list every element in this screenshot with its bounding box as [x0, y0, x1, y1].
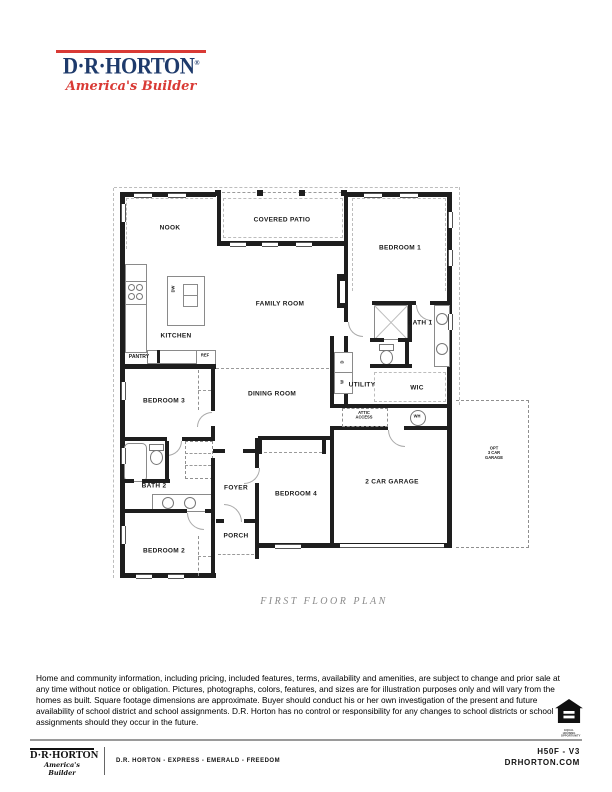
- room-label-nook: NOOK: [160, 225, 181, 232]
- plan-geometry: [344, 308, 348, 322]
- plan-geometry: [344, 192, 348, 276]
- plan-geometry: [147, 350, 197, 364]
- plan-geometry: [296, 242, 312, 247]
- footer-vertical-divider: [104, 747, 105, 775]
- plan-geometry: [217, 192, 347, 193]
- plan-geometry: [404, 426, 452, 430]
- plan-geometry: [257, 190, 263, 196]
- plan-geometry: [262, 242, 278, 247]
- logo-name-text: D·R·HORTON: [63, 53, 195, 79]
- plan-geometry: [120, 437, 167, 441]
- equal-housing-logo: EQUAL HOUSING OPPORTUNITY: [551, 699, 587, 749]
- room-label-pantry: PANTRY: [129, 354, 149, 359]
- shower: [374, 305, 408, 340]
- plan-geometry: [388, 430, 405, 447]
- equal-housing-icon: [555, 699, 583, 723]
- plan-geometry: [322, 440, 326, 454]
- plan-geometry: [136, 293, 143, 300]
- plan-geometry: [448, 212, 453, 228]
- plan-geometry: [255, 438, 259, 468]
- plan-geometry: [213, 449, 225, 453]
- plan-geometry: [436, 343, 448, 355]
- plan-geometry: [456, 400, 529, 548]
- plan-geometry: [339, 280, 346, 304]
- plan-geometry: [114, 187, 458, 188]
- plan-geometry: [244, 468, 260, 484]
- plan-geometry: [346, 192, 452, 197]
- attic-line2: ACCESS: [355, 416, 372, 421]
- room-label-dining-room: DINING ROOM: [248, 391, 296, 398]
- room-label-wic: WIC: [410, 385, 424, 392]
- room-label-porch: PORCH: [224, 533, 249, 540]
- plan-geometry: [125, 264, 147, 353]
- plan-geometry: [183, 295, 198, 307]
- plan-geometry: [255, 483, 259, 519]
- plan-geometry: [216, 368, 344, 369]
- drhorton-logo: D·R·HORTON® America's Builder: [56, 50, 206, 94]
- room-label-covered-patio: COVERED PATIO: [254, 217, 311, 224]
- fixture-label-washer: W: [341, 380, 346, 384]
- plan-geometry: [128, 284, 135, 291]
- plan-geometry: [126, 198, 213, 249]
- website: DRHORTON.COM: [505, 757, 580, 768]
- plan-geometry: [255, 519, 259, 559]
- room-label-garage: 2 CAR GARAGE: [365, 479, 418, 486]
- room-label-bedroom3: BEDROOM 3: [143, 398, 185, 405]
- plan-geometry: [244, 519, 255, 523]
- plan-geometry: [136, 574, 152, 579]
- plan-geometry: [370, 338, 384, 342]
- page: D·R·HORTON® America's Builder: [0, 0, 612, 792]
- plan-geometry: [197, 412, 212, 427]
- plan-geometry: [168, 574, 184, 579]
- plan-geometry: [113, 188, 114, 578]
- plan-geometry: [150, 450, 163, 465]
- plan-geometry: [364, 193, 382, 198]
- plan-geometry: [459, 187, 460, 405]
- footer-brands: D.R. HORTON - EXPRESS - EMERALD - FREEDO…: [116, 758, 280, 764]
- room-label-foyer: FOYER: [224, 485, 248, 492]
- plan-geometry: [243, 449, 255, 453]
- footer-logo: D·R·HORTON America's Builder: [30, 748, 94, 777]
- room-label-bath1: BATH 1: [408, 320, 433, 327]
- plan-geometry: [136, 284, 143, 291]
- room-label-opt-garage: OPT 3 CAR GARAGE: [485, 447, 503, 462]
- room-label-bedroom1: BEDROOM 1: [379, 245, 421, 252]
- plan-geometry: [198, 556, 211, 557]
- footer-divider: [30, 739, 582, 741]
- plan-geometry: [124, 443, 147, 482]
- plan-geometry: [128, 293, 135, 300]
- fixture-label-dryer: D: [341, 361, 346, 364]
- plan-code: H50F - V3: [505, 746, 580, 757]
- plan-geometry: [258, 436, 330, 440]
- plan-geometry: [165, 441, 169, 479]
- plan-geometry: [162, 497, 174, 509]
- opt-garage-line3: GARAGE: [485, 456, 503, 461]
- plan-geometry: [216, 519, 224, 523]
- room-label-family-room: FAMILY ROOM: [256, 301, 304, 308]
- plan-geometry: [230, 242, 246, 247]
- fixture-label-attic-access: ATTIC ACCESS: [355, 411, 372, 421]
- plan-geometry: [120, 509, 187, 513]
- plan-geometry: [224, 504, 242, 522]
- fixture-label-wh: WH: [414, 415, 421, 420]
- plan-geometry: [218, 554, 254, 555]
- registered-mark: ®: [194, 58, 199, 67]
- plan-geometry: [211, 458, 215, 509]
- plan-geometry: [447, 192, 452, 548]
- room-label-kitchen: KITCHEN: [161, 333, 192, 340]
- plan-geometry: [134, 193, 152, 198]
- plan-geometry: [157, 350, 160, 363]
- disclaimer-text: Home and community information, includin…: [36, 673, 566, 728]
- plan-geometry: [380, 350, 393, 365]
- plan-geometry: [121, 526, 126, 544]
- plan-geometry: [185, 465, 211, 466]
- plan-geometry: [330, 430, 334, 543]
- room-label-bedroom2: BEDROOM 2: [143, 548, 185, 555]
- plan-geometry: [168, 193, 186, 198]
- logo-tagline: America's Builder: [56, 79, 206, 94]
- plan-geometry: [167, 441, 182, 456]
- fixture-label-dw: DW: [172, 286, 177, 293]
- plan-geometry: [121, 382, 126, 400]
- plan-geometry: [400, 193, 418, 198]
- room-label-utility: UTILITY: [349, 382, 376, 389]
- plan-geometry: [405, 338, 409, 366]
- plan-geometry: [264, 452, 322, 453]
- footer-logo-name: D·R·HORTON: [30, 750, 94, 761]
- plan-geometry: [217, 192, 221, 241]
- room-label-bath2: BATH 2: [142, 483, 167, 490]
- plan-geometry: [448, 250, 453, 266]
- plan-geometry: [198, 390, 211, 391]
- logo-name: D·R·HORTON®: [56, 53, 206, 80]
- plan-geometry: [120, 479, 134, 483]
- equal-housing-text: EQUAL HOUSING OPPORTUNITY: [561, 729, 577, 738]
- plan-geometry: [275, 544, 301, 549]
- fixture-label-ref: REF: [201, 354, 209, 359]
- plan-geometry: [184, 497, 196, 509]
- plan-geometry: [185, 453, 211, 454]
- footer-logo-tagline: America's Builder: [30, 761, 94, 777]
- plan-geometry: [187, 513, 204, 530]
- plan-geometry: [185, 441, 213, 479]
- plan-geometry: [121, 204, 126, 222]
- footer-right: H50F - V3 DRHORTON.COM: [505, 746, 580, 768]
- plan-geometry: [299, 190, 305, 196]
- plan-geometry: [436, 313, 448, 325]
- plan-geometry: [348, 322, 363, 337]
- floor-plan-drawing: NOOK COVERED PATIO BEDROOM 1 FAMILY ROOM…: [112, 186, 536, 600]
- plan-geometry: [120, 364, 216, 369]
- room-label-bedroom4: BEDROOM 4: [275, 491, 317, 498]
- plan-geometry: [121, 448, 126, 464]
- plan-caption: FIRST FLOOR PLAN: [112, 596, 536, 607]
- plan-geometry: [448, 314, 453, 330]
- garage-door: [340, 544, 444, 548]
